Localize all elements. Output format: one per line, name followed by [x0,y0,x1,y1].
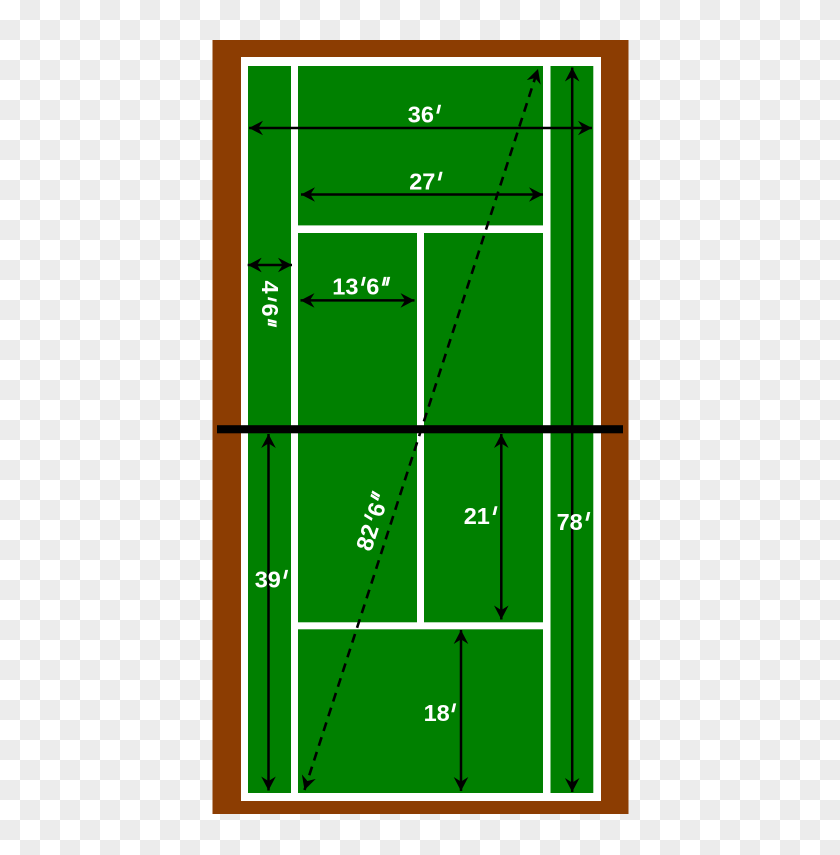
svg-text:18: 18 [424,700,450,726]
svg-text:27: 27 [409,169,435,195]
svg-text:13: 13 [332,274,358,300]
svg-text:78: 78 [557,509,583,535]
svg-text:6: 6 [257,304,283,317]
svg-text:21: 21 [464,503,490,529]
svg-text:39: 39 [255,567,281,593]
svg-text:6: 6 [366,274,379,300]
svg-text:36: 36 [408,102,434,128]
svg-text:4: 4 [257,281,283,294]
